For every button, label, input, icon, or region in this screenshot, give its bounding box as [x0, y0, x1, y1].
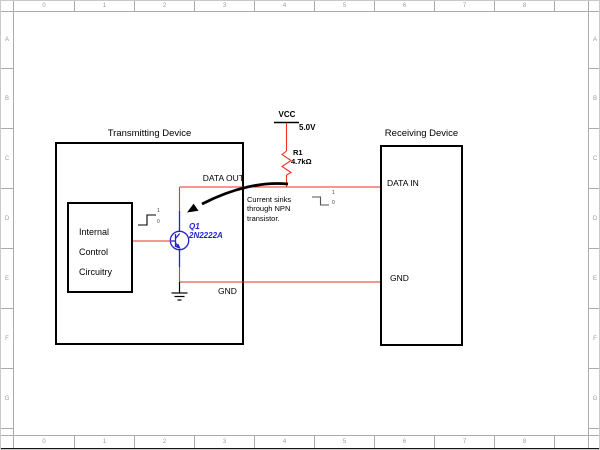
ruler-label-2: 2 — [135, 1, 195, 11]
edge-rising-logic-high: 1 — [157, 209, 160, 214]
gnd-net-label-transmit: GND — [218, 286, 237, 296]
ruler-filler — [555, 436, 588, 448]
ruler-bottom: 012345678 — [14, 435, 588, 448]
ruler-label-0: 0 — [14, 1, 75, 11]
ruler-label-8: 8 — [495, 1, 555, 11]
ruler-label-A: A — [589, 12, 600, 69]
receiving-device-box — [380, 145, 463, 346]
falling-edge-icon — [312, 197, 329, 205]
resistor-value-label: 4.7kΩ — [291, 157, 312, 167]
vcc-power-symbol — [274, 123, 299, 152]
transmitting-device-title: Transmitting Device — [55, 129, 244, 139]
ruler-filler — [555, 1, 588, 11]
ruler-label-0: 0 — [14, 436, 75, 448]
ruler-corner — [588, 435, 600, 448]
annotation-line2: through NPN — [247, 204, 290, 213]
ruler-label-4: 4 — [255, 1, 315, 11]
ruler-label-3: 3 — [195, 436, 255, 448]
ruler-label-B: B — [1, 69, 13, 129]
edge-falling-logic-low: 0 — [332, 201, 335, 206]
ruler-label-A: A — [1, 12, 13, 69]
internal-label-line2: Control — [79, 247, 108, 257]
ruler-corner — [588, 1, 600, 12]
ruler-label-5: 5 — [315, 436, 375, 448]
ruler-label-8: 8 — [495, 436, 555, 448]
ruler-label-D: D — [1, 189, 13, 249]
ruler-label-5: 5 — [315, 1, 375, 11]
ruler-label-C: C — [1, 129, 13, 189]
internal-label-line3: Circuitry — [79, 267, 112, 277]
annotation-line3: transistor. — [247, 214, 280, 223]
ruler-top: 012345678 — [14, 1, 588, 12]
vcc-voltage-label: 5.0V — [299, 123, 315, 133]
ruler-label-F: F — [589, 309, 600, 369]
ruler-label-E: E — [589, 249, 600, 309]
ruler-label-G: G — [1, 369, 13, 429]
gnd-pin-label-receive: GND — [390, 273, 409, 283]
ruler-label-G: G — [589, 369, 600, 429]
transistor-part-label: 2N2222A — [189, 231, 223, 241]
ruler-left: ABCDEFG — [1, 12, 14, 435]
ruler-label-2: 2 — [135, 436, 195, 448]
annotation-line1: Current sinks — [247, 195, 291, 204]
ruler-label-C: C — [589, 129, 600, 189]
ruler-label-3: 3 — [195, 1, 255, 11]
edge-falling-logic-high: 1 — [332, 191, 335, 196]
receiving-device-title: Receiving Device — [380, 129, 463, 139]
ruler-corner — [1, 1, 14, 12]
ruler-label-4: 4 — [255, 436, 315, 448]
schematic-page: 012345678 012345678 ABCDEFG ABCDEFG Tran… — [0, 0, 600, 450]
ruler-label-1: 1 — [75, 436, 135, 448]
ruler-label-6: 6 — [375, 436, 435, 448]
resistor-r1-symbol — [282, 151, 291, 187]
ruler-right: ABCDEFG — [588, 12, 600, 435]
data-in-pin-label: DATA IN — [387, 178, 419, 188]
ruler-label-6: 6 — [375, 1, 435, 11]
edge-rising-logic-low: 0 — [157, 220, 160, 225]
data-out-pin-label: DATA OUT — [198, 173, 244, 183]
ruler-label-E: E — [1, 249, 13, 309]
ruler-label-1: 1 — [75, 1, 135, 11]
ruler-label-B: B — [589, 69, 600, 129]
internal-label-line1: Internal — [79, 227, 109, 237]
ruler-corner — [1, 435, 14, 448]
ruler-label-D: D — [589, 189, 600, 249]
ruler-label-F: F — [1, 309, 13, 369]
ruler-label-7: 7 — [435, 1, 495, 11]
ruler-label-7: 7 — [435, 436, 495, 448]
vcc-net-label: VCC — [267, 110, 307, 120]
